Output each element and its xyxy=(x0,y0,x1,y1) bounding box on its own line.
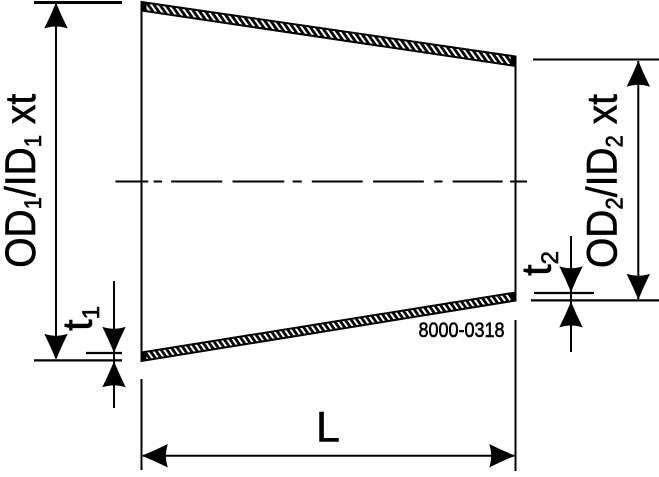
svg-text:OD2/ID2 xt: OD2/ID2 xt xyxy=(579,94,629,268)
svg-text:8000-0318: 8000-0318 xyxy=(419,318,505,342)
svg-text:L: L xyxy=(316,404,340,452)
svg-text:OD1/ID1 xt: OD1/ID1 xt xyxy=(0,94,47,268)
